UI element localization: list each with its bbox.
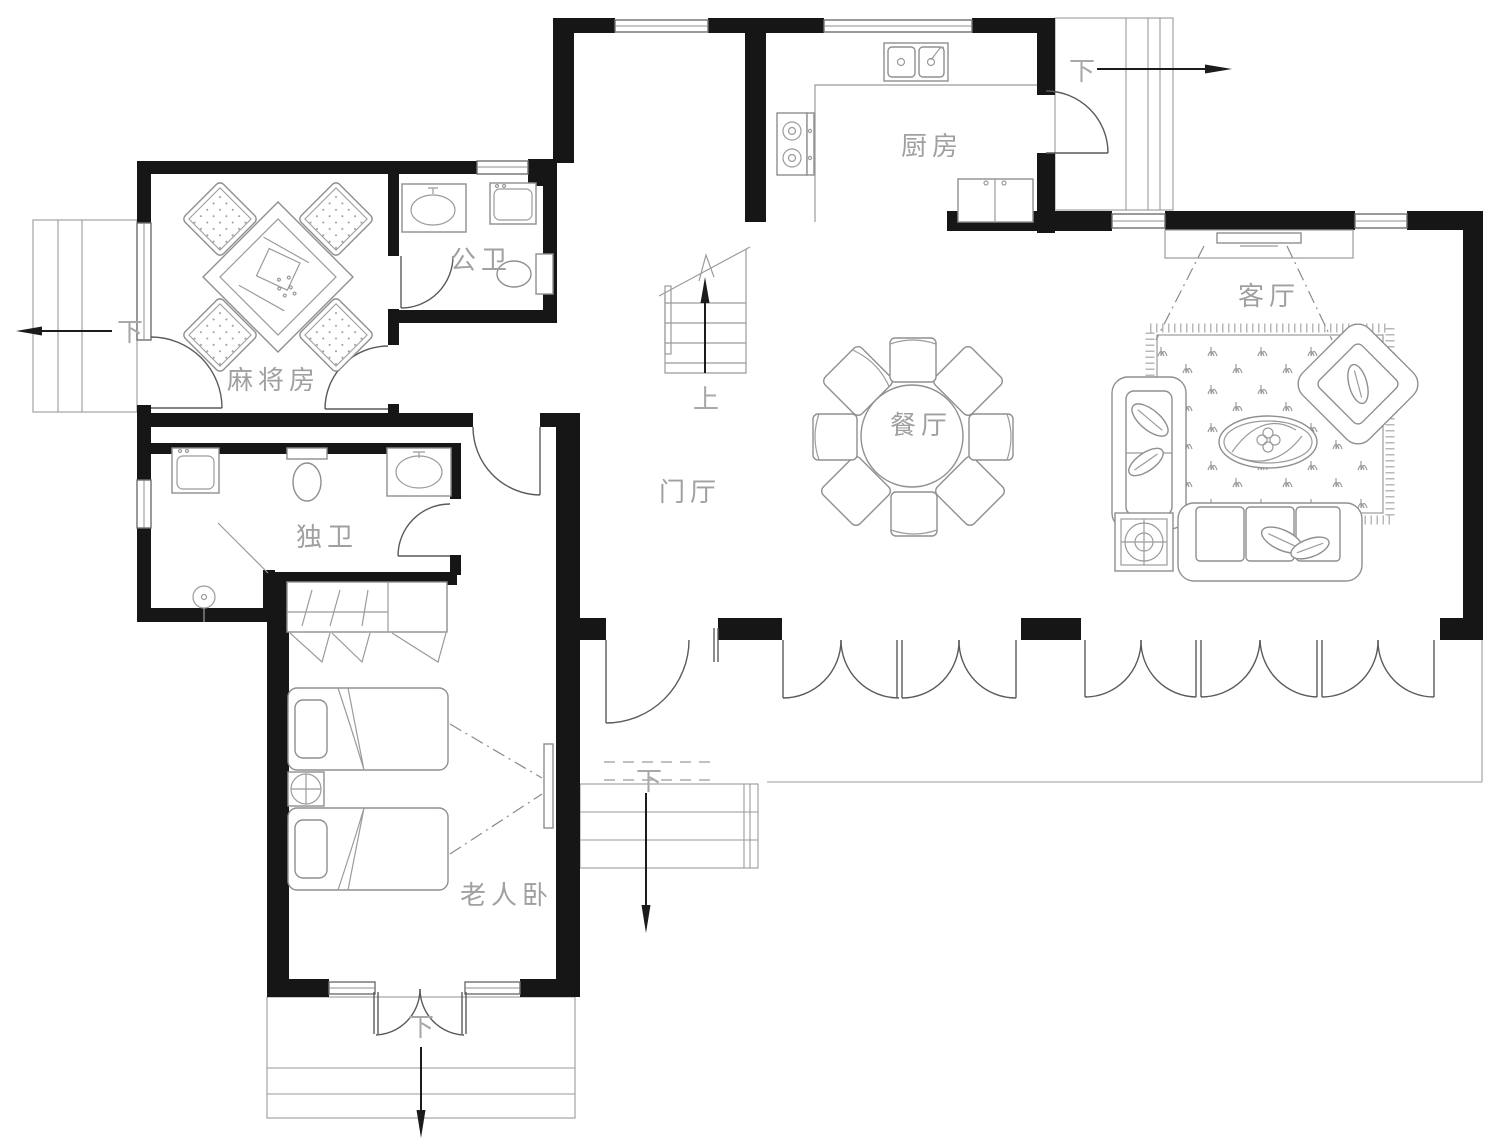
west-exterior-steps [33,220,137,412]
bed [288,808,448,890]
south-porch-steps [580,762,758,868]
northeast-exterior-stairs [1055,18,1173,210]
bedroom-tv [544,744,553,828]
sofa-south [1178,503,1362,581]
arrow-south-down [642,793,651,933]
dining-chair [969,414,1013,460]
bath-sink [387,448,451,496]
label-living-room: 客厅 [1238,281,1300,311]
label-elder-bedroom: 老人卧 [460,880,553,910]
mahjong-furniture [182,181,374,373]
arrow-northeast-down [1097,65,1232,74]
window [1112,214,1165,228]
dining-chair [813,414,857,460]
public-bath-fixtures [402,183,553,294]
arrow-west-down [16,327,112,336]
folding-glass-doors [783,640,1434,698]
label-down-west: 下 [117,317,143,347]
window [465,982,520,994]
window [1355,214,1407,228]
side-table [1115,513,1173,571]
private-bath-door [398,504,450,556]
tv-projection-line [450,724,542,778]
label-mahjong-room: 麻将房 [227,365,320,395]
wardrobe [287,582,447,662]
label-down-south: 下 [636,766,662,796]
label-down-entrance: 下 [408,1012,434,1042]
label-down-northeast: 下 [1069,56,1095,86]
kitchen-stove [777,113,814,175]
corridor-door [473,427,540,495]
tv-console [1165,230,1353,258]
kitchen-fridge [958,179,1033,222]
dining-chair [891,492,937,536]
terrace-single-door [606,628,718,723]
arrow-stairs-up [701,277,710,373]
washing-machine [490,183,536,224]
label-stairs-up: 上 [693,384,719,414]
loveseat-west [1112,377,1186,529]
window [329,982,375,994]
kitchen-sink [884,43,948,81]
bed [288,688,448,770]
shower-area [193,523,268,622]
washing-machine [172,448,219,493]
public-bath-door [401,256,453,308]
label-kitchen: 厨房 [901,131,963,161]
arrow-entrance-down [417,1047,426,1138]
floor-plan: 厨房 客厅 餐厅 门厅 麻将房 公卫 独卫 老人卧 上 下 下 下 下 [0,0,1500,1148]
window [824,20,972,32]
window [477,161,528,174]
label-public-bathroom: 公卫 [450,245,512,275]
label-private-bathroom: 独卫 [296,522,358,552]
bedroom-furniture [287,582,553,890]
floor-plan-page: 厨房 客厅 餐厅 门厅 麻将房 公卫 独卫 老人卧 上 下 下 下 下 [0,0,1500,1148]
dining-chair [890,338,936,382]
coffee-table [1219,416,1317,468]
nightstand [288,772,324,806]
toilet [287,448,327,501]
window [615,20,708,32]
label-foyer: 门厅 [659,477,721,507]
tv-projection-line [450,794,542,854]
bath-sink [402,184,466,232]
window [137,480,151,528]
label-dining-room: 餐厅 [890,410,952,440]
